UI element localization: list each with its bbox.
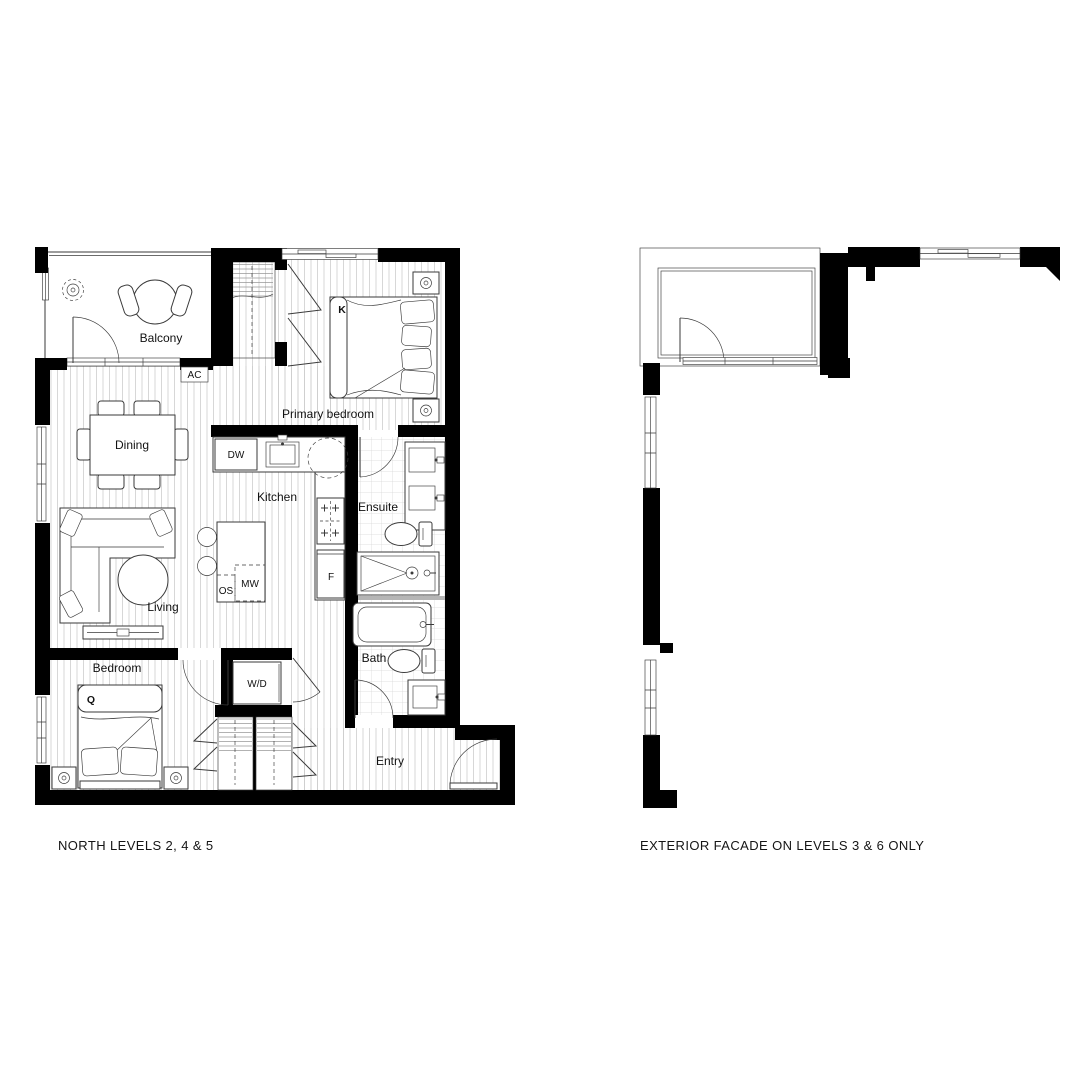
coffee-table xyxy=(118,555,168,605)
media-console xyxy=(83,626,163,639)
nightstand xyxy=(52,767,76,789)
nightstand xyxy=(413,399,439,422)
entry-label: Entry xyxy=(376,754,404,768)
nightstand xyxy=(164,767,188,789)
bathtub xyxy=(353,603,434,646)
ensuite-toilet xyxy=(385,522,432,546)
unit-floor-plan-drawing: Balcony AC Primary bedroom Dining DW Kit… xyxy=(35,240,515,810)
bath-toilet xyxy=(388,649,435,673)
shower xyxy=(357,552,439,595)
ac-label: AC xyxy=(188,370,202,381)
ensuite-vanity xyxy=(405,442,445,530)
kitchen-label: Kitchen xyxy=(257,490,297,504)
primary-bedroom-label: Primary bedroom xyxy=(282,407,374,421)
fridge-label: F xyxy=(328,572,334,583)
king-bed xyxy=(330,297,437,398)
unit-floor-plan: Balcony AC Primary bedroom Dining DW Kit… xyxy=(35,240,515,810)
balcony-door xyxy=(73,317,119,363)
microwave-label: MW xyxy=(241,579,259,590)
washer-dryer-label: W/D xyxy=(247,679,266,690)
dining-label: Dining xyxy=(115,438,149,452)
king-bed-label: K xyxy=(338,304,346,316)
bath-vanity xyxy=(408,680,445,715)
living-label: Living xyxy=(147,600,178,614)
bedroom-label: Bedroom xyxy=(93,661,142,675)
ensuite-bath-partition xyxy=(358,596,445,600)
right-plan-caption: EXTERIOR FACADE ON LEVELS 3 & 6 ONLY xyxy=(640,838,924,853)
cooktop xyxy=(317,498,344,544)
facade-walls xyxy=(643,247,1060,808)
ensuite-label: Ensuite xyxy=(358,500,398,514)
facade-outline-drawing xyxy=(635,240,1065,810)
nightstand xyxy=(413,272,439,294)
left-plan-caption: NORTH LEVELS 2, 4 & 5 xyxy=(58,838,214,853)
facade-balcony-outline xyxy=(640,248,820,366)
balcony-table xyxy=(117,280,194,324)
balcony-label: Balcony xyxy=(140,331,183,345)
planter xyxy=(63,280,84,301)
facade-outline-plan xyxy=(635,240,1065,810)
oven-stove-label: OS xyxy=(219,586,234,597)
bath-label: Bath xyxy=(362,651,387,665)
dishwasher-label: DW xyxy=(228,450,245,461)
queen-bed-label: Q xyxy=(87,694,95,706)
